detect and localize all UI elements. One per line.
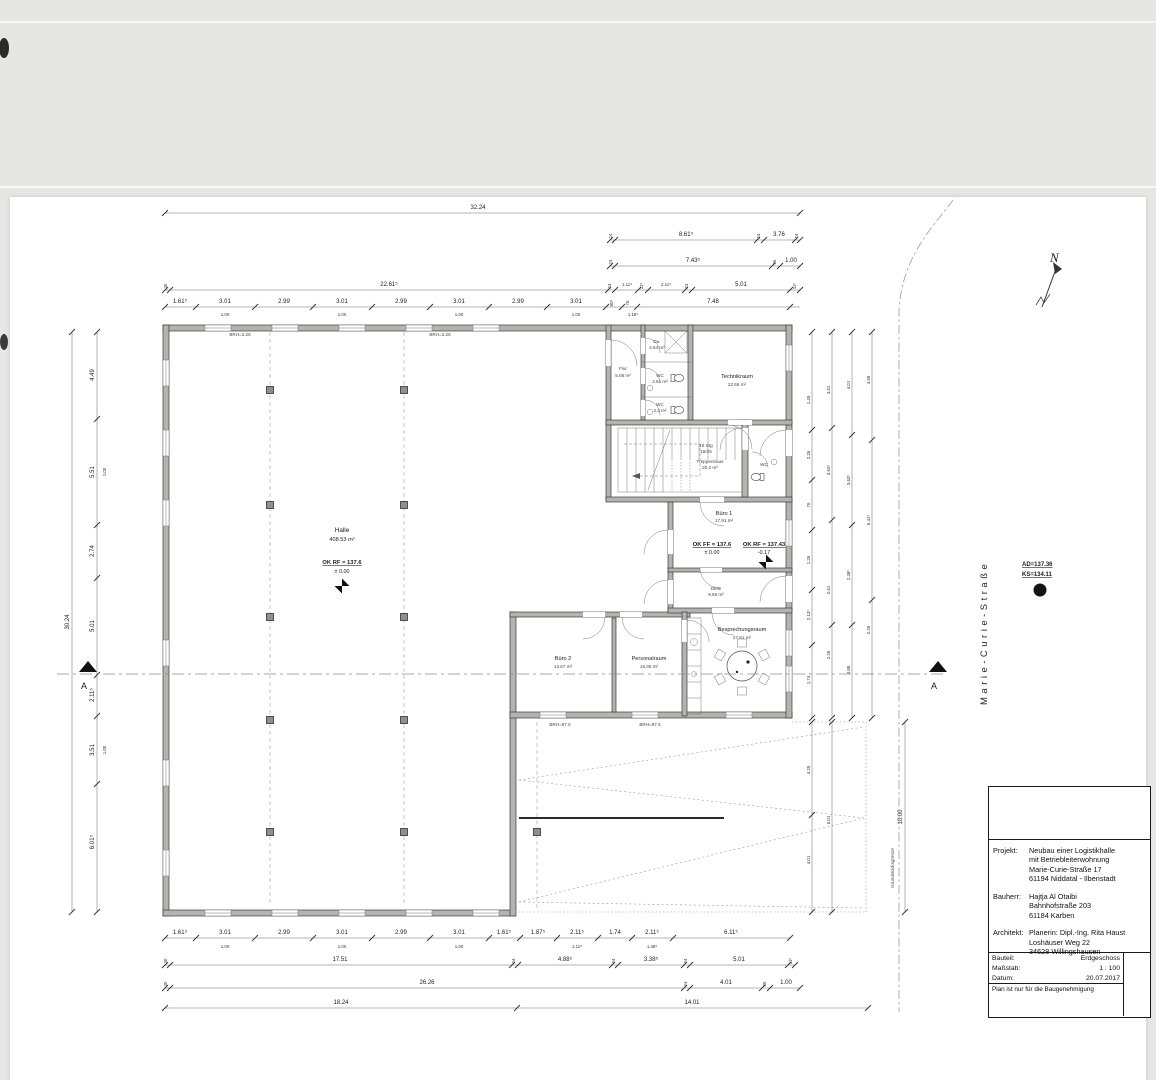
svg-text:2.74: 2.74 [90, 545, 96, 557]
svg-text:5.06 m²: 5.06 m² [615, 373, 631, 378]
svg-text:1.00: 1.00 [785, 258, 797, 264]
svg-text:6.01⁵: 6.01⁵ [89, 834, 96, 849]
svg-text:1.61⁵: 1.61⁵ [173, 929, 188, 936]
room-label-technikraum: Technikraum [721, 374, 753, 380]
svg-text:3.76: 3.76 [773, 232, 785, 238]
dimension-chains-bottom: 1.61⁵ 3.01 2.99 3.01 2.99 3.01 1.61⁵ 1.8… [162, 929, 871, 1011]
svg-text:8.61⁵: 8.61⁵ [679, 231, 694, 238]
meeting-table [714, 639, 769, 695]
svg-text:1.00: 1.00 [338, 312, 347, 317]
room-label-flur: Flur [619, 366, 627, 371]
massstab-value: 1 : 100 [1099, 965, 1120, 972]
svg-text:6.11⁵: 6.11⁵ [724, 929, 738, 936]
svg-text:24: 24 [607, 283, 612, 288]
svg-text:2.99: 2.99 [395, 930, 407, 936]
street-name-label: Marie-Curie-Straße [979, 561, 990, 705]
svg-text:76: 76 [625, 300, 630, 305]
svg-text:2.38⁵: 2.38⁵ [846, 570, 851, 581]
svg-text:3.63⁵: 3.63⁵ [826, 465, 831, 476]
svg-text:-0.17: -0.17 [758, 550, 770, 556]
svg-text:80⁵: 80⁵ [609, 299, 614, 306]
svg-text:3.01: 3.01 [219, 299, 231, 305]
bauherr-text: Hajtja Al Otaibi Bahnhofstraße 203 61184… [1029, 892, 1091, 920]
bauteil-row: Bauteil:Erdgeschoss [989, 953, 1123, 963]
room-label-du: Du. [653, 339, 660, 344]
svg-text:3.01: 3.01 [453, 299, 465, 305]
room-label-wc3: WC [760, 462, 768, 467]
svg-text:20.2 m²: 20.2 m² [702, 465, 718, 470]
datum-value: 20.07.2017 [1086, 975, 1120, 982]
column-grid [267, 332, 541, 908]
svg-text:24: 24 [794, 233, 799, 238]
svg-text:30: 30 [163, 283, 168, 288]
svg-text:3.63⁵: 3.63⁵ [846, 475, 851, 486]
svg-text:2.99: 2.99 [395, 299, 407, 305]
wall-note: BRH=2.26 [429, 332, 451, 337]
svg-text:4.51: 4.51 [826, 385, 831, 394]
svg-text:24: 24 [511, 958, 516, 963]
massstab-row: Maßstab:1 : 100 [989, 963, 1123, 973]
svg-text:2.13⁵: 2.13⁵ [806, 610, 811, 621]
title-block-empty-cell [1123, 953, 1150, 1016]
svg-text:6.01: 6.01 [826, 815, 831, 824]
svg-text:1.00: 1.00 [338, 944, 347, 949]
svg-text:2.11⁵: 2.11⁵ [661, 282, 671, 287]
room-area-halle: 408.53 m² [329, 537, 354, 543]
svg-text:2.99: 2.99 [512, 299, 524, 305]
svg-text:24: 24 [611, 958, 616, 963]
level-ff: OK FF = 137.6 [693, 542, 732, 548]
room-label-diele: Diele [711, 586, 722, 591]
svg-text:17.51: 17.51 [332, 957, 348, 963]
approval-note: Plan ist nur für die Baugenehmigung [989, 983, 1123, 1016]
section-marker-right [929, 661, 947, 672]
svg-text:1.49: 1.49 [806, 395, 811, 404]
svg-text:18.24: 18.24 [333, 1000, 349, 1006]
svg-text:24: 24 [756, 233, 761, 238]
svg-text:7.43⁵: 7.43⁵ [686, 257, 701, 264]
bauherr-label: Bauherr: [993, 892, 1029, 920]
room-label-halle: Halle [335, 527, 350, 534]
svg-text:4.01: 4.01 [806, 855, 811, 864]
svg-text:2.99: 2.99 [278, 299, 290, 305]
svg-text:1.87⁵: 1.87⁵ [531, 929, 546, 936]
svg-text:9.66 m²: 9.66 m² [708, 592, 724, 597]
svg-text:2.26: 2.26 [826, 650, 831, 659]
svg-text:24: 24 [684, 283, 689, 288]
svg-text:1.26: 1.26 [806, 555, 811, 564]
svg-text:± 0.00: ± 0.00 [705, 550, 720, 556]
svg-text:2.11⁵: 2.11⁵ [89, 688, 96, 702]
title-block: Projekt: Neubau einer Logistikhalle mit … [988, 786, 1151, 1018]
svg-text:3.51: 3.51 [90, 744, 96, 756]
svg-text:1.74: 1.74 [609, 930, 621, 936]
svg-text:36: 36 [762, 981, 767, 986]
svg-text:11⁵: 11⁵ [788, 958, 793, 965]
svg-text:1.74: 1.74 [806, 675, 811, 684]
svg-text:5.01: 5.01 [735, 282, 747, 288]
svg-text:5.01: 5.01 [90, 620, 96, 632]
wall-note: BRH=2.26 [229, 332, 251, 337]
room-label-buero2: Büro 2 [555, 656, 571, 662]
svg-text:2.99: 2.99 [278, 930, 290, 936]
svg-text:4.49: 4.49 [90, 369, 96, 381]
svg-text:1.00: 1.00 [221, 312, 230, 317]
manhole-symbol [1034, 584, 1047, 597]
scanned-plan-sheet: 18 Stg 18/25 [0, 0, 1156, 1080]
svg-text:11⁵: 11⁵ [792, 283, 797, 290]
svg-text:1.11⁵: 1.11⁵ [572, 944, 582, 949]
svg-text:4.01: 4.01 [720, 980, 732, 986]
svg-text:13.67 m²: 13.67 m² [554, 664, 573, 669]
boundary-label: Grundstücksgrenze [890, 848, 895, 888]
dimension-chains-left: 30.24 4.49 5.51 2.74 5.01 2.11⁵ 3.51 6.0… [65, 329, 107, 915]
svg-text:14.01: 14.01 [684, 1000, 700, 1006]
datum-row: Datum:20.07.2017 [989, 973, 1123, 983]
svg-text:30.24: 30.24 [65, 614, 71, 630]
svg-text:24: 24 [683, 981, 688, 986]
svg-text:5.41⁵: 5.41⁵ [866, 515, 871, 526]
projekt-label: Projekt: [993, 846, 1029, 884]
svg-text:1.00: 1.00 [102, 745, 107, 754]
svg-text:3.38⁵: 3.38⁵ [644, 956, 659, 963]
svg-text:1.00: 1.00 [780, 980, 792, 986]
wall-note: BRH=87.5 [639, 722, 661, 727]
north-arrow: N [1036, 250, 1062, 307]
svg-text:1.61⁵: 1.61⁵ [497, 929, 512, 936]
svg-text:4.88: 4.88 [846, 665, 851, 674]
svg-text:1.18⁵: 1.18⁵ [628, 312, 639, 317]
yard-canopy-area [515, 722, 866, 912]
dimension-chains-right: 1.49 2.26 76 1.26 2.13⁵ 1.74 4.51 3.63⁵ … [806, 329, 908, 915]
floor-plan-drawing: 18 Stg 18/25 [0, 0, 1156, 1080]
svg-text:27.61 m²: 27.61 m² [733, 635, 752, 640]
svg-text:36: 36 [772, 259, 777, 264]
svg-text:1.61⁵: 1.61⁵ [173, 298, 188, 305]
kitchen-unit [687, 618, 701, 714]
svg-text:4.25: 4.25 [806, 765, 811, 774]
svg-text:4.01: 4.01 [846, 380, 851, 389]
title-block-addresses: Projekt: Neubau einer Logistikhalle mit … [989, 840, 1150, 952]
svg-text:30: 30 [163, 958, 168, 963]
door-swings [583, 338, 786, 642]
svg-text:22.55 m²: 22.55 m² [728, 382, 747, 387]
room-label-besprechungsraum: Besprechungsraum [718, 627, 767, 633]
level-halle: OK RF = 137.6 [322, 560, 362, 566]
svg-text:1.11⁵: 1.11⁵ [622, 282, 632, 287]
svg-text:2.64 m²: 2.64 m² [649, 345, 665, 350]
svg-text:2.51: 2.51 [826, 585, 831, 594]
section-letter-left: A [81, 681, 87, 691]
room-label-treppenhaus: Treppenhaus [697, 459, 725, 464]
stairs-note: 18/25 [700, 449, 712, 454]
svg-text:2.2 m²: 2.2 m² [653, 408, 666, 413]
svg-text:3.01: 3.01 [336, 930, 348, 936]
wall-note: BRH=87.5 [549, 722, 571, 727]
svg-text:17.91 m²: 17.91 m² [715, 518, 734, 523]
svg-text:11⁵: 11⁵ [639, 283, 644, 290]
svg-text:1.38⁵: 1.38⁵ [647, 944, 658, 949]
svg-text:24: 24 [608, 259, 613, 264]
svg-text:7.48: 7.48 [707, 299, 719, 305]
svg-text:1.00: 1.00 [455, 312, 464, 317]
room-label-wc1: WC [656, 373, 664, 378]
windows [163, 325, 792, 916]
stairs-note: 18 Stg [699, 443, 713, 448]
section-letter-right: A [931, 681, 937, 691]
svg-text:5.01: 5.01 [733, 957, 745, 963]
svg-text:2.81 m²: 2.81 m² [652, 379, 668, 384]
svg-text:16.36 m²: 16.36 m² [640, 664, 659, 669]
svg-text:3.01: 3.01 [453, 930, 465, 936]
svg-text:± 0.00: ± 0.00 [335, 569, 350, 575]
section-line-a: A A [57, 661, 947, 691]
svg-text:2.26: 2.26 [866, 625, 871, 634]
svg-text:32.24: 32.24 [470, 205, 486, 211]
svg-text:1.00: 1.00 [221, 944, 230, 949]
svg-text:4.88⁵: 4.88⁵ [558, 956, 573, 963]
room-label-personalraum: Personalraum [632, 656, 667, 662]
svg-text:24: 24 [608, 233, 613, 238]
manhole-label: AD=137.36 [1022, 562, 1053, 568]
svg-text:4.99: 4.99 [866, 375, 871, 384]
bauteil-value: Erdgeschoss [1081, 955, 1120, 962]
room-labels: Halle 408.53 m² OK RF = 137.6 ± 0.00 Flu… [229, 332, 786, 727]
svg-text:3.01: 3.01 [570, 299, 582, 305]
room-label-wc2: WC [656, 402, 664, 407]
svg-text:1.00: 1.00 [455, 944, 464, 949]
manhole-label: KS=134.11 [1022, 572, 1053, 578]
projekt-text: Neubau einer Logistikhalle mit Betrieble… [1029, 846, 1116, 884]
svg-text:24: 24 [683, 958, 688, 963]
svg-text:1.00: 1.00 [572, 312, 581, 317]
room-label-buero1: Büro 1 [716, 511, 732, 517]
svg-text:26.26: 26.26 [419, 980, 435, 986]
svg-text:2.26: 2.26 [806, 450, 811, 459]
building-walls [163, 325, 792, 916]
svg-text:2.11⁵: 2.11⁵ [570, 929, 584, 936]
property-boundary-line [899, 200, 953, 1012]
svg-text:3.01: 3.01 [336, 299, 348, 305]
level-rf: OK RF = 137.43 [743, 542, 786, 548]
svg-text:30: 30 [163, 981, 168, 986]
section-marker-left [79, 661, 97, 672]
title-block-logo-area [989, 787, 1150, 840]
dimension-chains-top: 32.24 24 8.61⁵ 24 3.76 24 24 7.43⁵ 36 1.… [162, 205, 803, 317]
svg-text:22.61⁵: 22.61⁵ [380, 281, 398, 288]
svg-text:1.00: 1.00 [102, 467, 107, 476]
svg-text:76: 76 [806, 502, 811, 507]
svg-text:3.01: 3.01 [219, 930, 231, 936]
svg-text:5.51: 5.51 [90, 466, 96, 478]
north-letter: N [1049, 250, 1060, 265]
scan-artifacts [0, 38, 9, 350]
svg-text:2.11⁵: 2.11⁵ [645, 929, 659, 936]
